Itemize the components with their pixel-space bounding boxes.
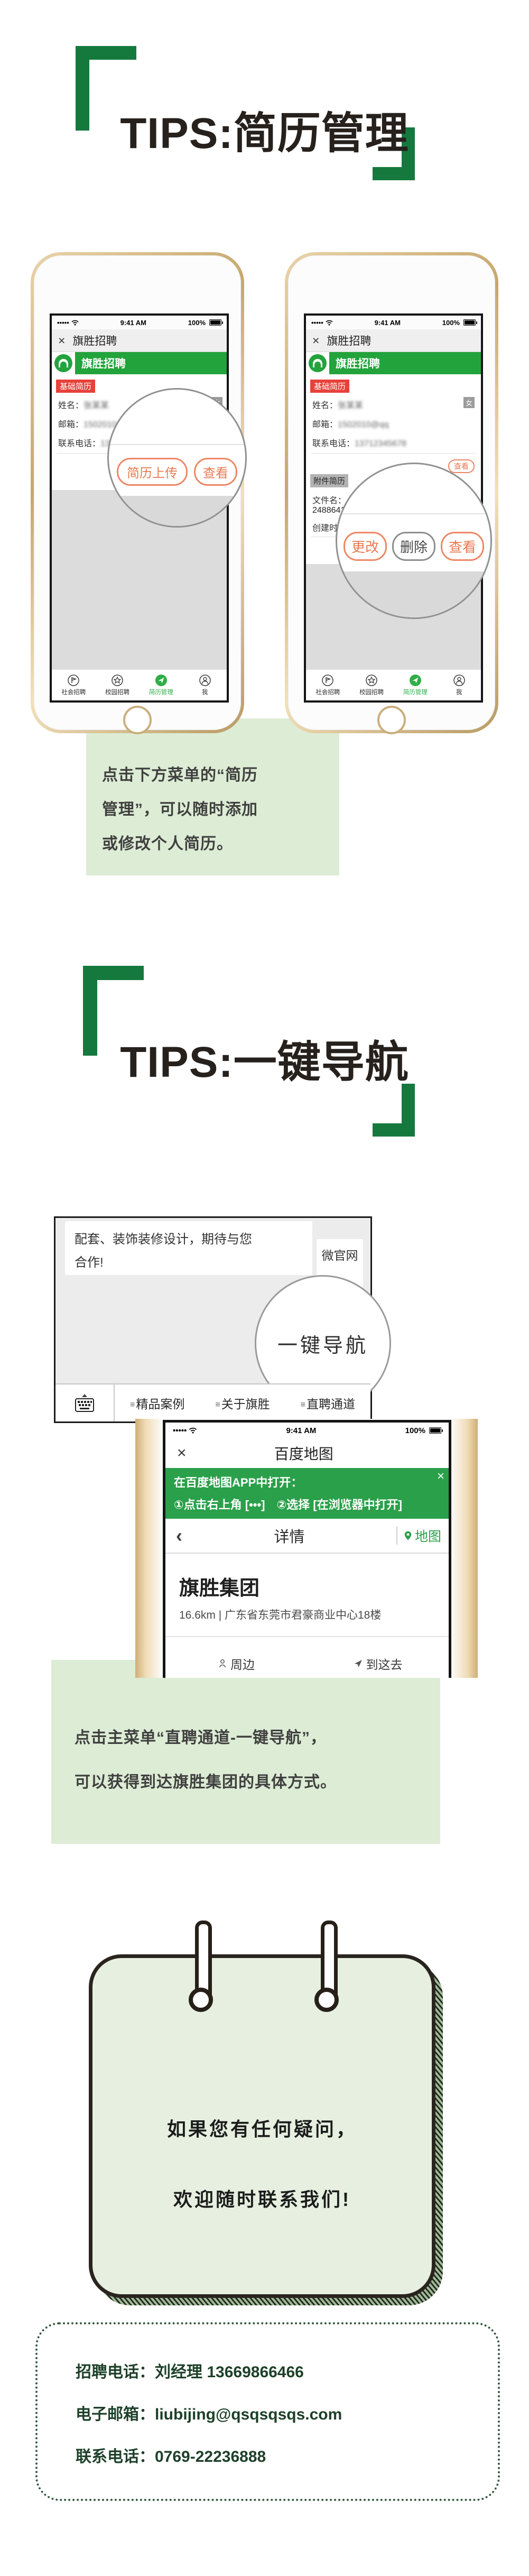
- form-row-name: 姓名：张某某: [58, 398, 109, 411]
- account-logo: [306, 352, 329, 374]
- tab-campus-recruit[interactable]: 校园招聘: [96, 670, 140, 700]
- social-recruit-icon: [67, 674, 80, 687]
- signal-dots-icon: •••••: [311, 319, 323, 327]
- tip1-note-box: 点击下方菜单的“简历 管理”，可以随时添加 或修改个人简历。: [86, 718, 339, 875]
- recruit-phone-value: 刘经理 13669866466: [155, 2363, 304, 2381]
- campus-recruit-icon: [365, 674, 378, 687]
- status-bar: ••••• 9:41 AM 100%: [52, 316, 227, 329]
- notepad-line2: 欢迎随时联系我们!: [92, 2184, 432, 2212]
- divider: [396, 1527, 397, 1545]
- tab-resume-manage[interactable]: 简历管理: [394, 670, 438, 700]
- resume-upload-button[interactable]: 简历上传: [117, 458, 188, 486]
- name-value-blurred: 张某某: [338, 401, 363, 410]
- detail-subnav: ‹ 详情 地图: [165, 1519, 449, 1554]
- battery-percent: 100%: [188, 319, 206, 327]
- section-title-navigation: TIPS:一键导航: [0, 1027, 529, 1090]
- tip1-note-line1: 点击下方菜单的“简历: [102, 762, 258, 785]
- wechat-chat-screenshot: 配套、装饰装修设计，期待与您 合作! 微官网 东方 一键导航 ≡精品案例 ≡: [54, 1216, 372, 1423]
- social-recruit-icon: [321, 674, 334, 687]
- map-link-label: 地图: [415, 1526, 441, 1545]
- tip2-note-line2: 可以获得到达旗胜集团的具体方式。: [75, 1769, 337, 1792]
- wechat-menu-bar: ≡精品案例 ≡关于旗胜 ≡直聘通道: [55, 1383, 370, 1421]
- account-title: 旗胜招聘: [336, 355, 380, 371]
- navbar-title: 旗胜招聘: [72, 333, 117, 348]
- navbar-title: 旗胜招聘: [327, 333, 371, 348]
- battery-icon: [429, 1427, 441, 1434]
- wifi-icon: [326, 320, 333, 326]
- form-row-email: 邮箱：1502010@qq: [312, 417, 388, 430]
- tab-me[interactable]: 我: [183, 670, 227, 700]
- back-chevron-icon[interactable]: ‹: [176, 1525, 182, 1547]
- wifi-icon: [71, 320, 79, 326]
- qisheng-logo-icon: [54, 354, 72, 372]
- notepad-line1: 如果您有任何疑问，: [92, 2114, 432, 2141]
- menu-item-guanyu-qisheng[interactable]: ≡关于旗胜: [200, 1394, 285, 1412]
- form-row-phone: 联系电话：13712345678: [312, 436, 406, 449]
- binder-ring-left-loop: [189, 1988, 213, 2012]
- menu-item-zhipin-tongdao[interactable]: ≡直聘通道: [285, 1394, 370, 1412]
- phone-mockup-map: ••••• 9:41 AM 100% × 百度地图 在百度地图APP中打开： ①…: [135, 1419, 478, 1678]
- open-in-app-banner: 在百度地图APP中打开： ①点击右上角 [•••] ②选择 [在浏览器中打开] …: [165, 1468, 449, 1519]
- resume-manage-icon: [155, 674, 168, 687]
- name-value-blurred: 张某某: [83, 401, 109, 410]
- me-icon: [453, 674, 466, 687]
- close-icon[interactable]: ×: [312, 334, 319, 348]
- qisheng-logo-icon: [309, 354, 327, 372]
- battery-icon: [463, 319, 476, 326]
- bottom-tab-bar: 社会招聘 校园招聘 简历管理 我: [306, 669, 481, 700]
- binder-ring-right-loop: [314, 1988, 339, 2012]
- view-basic-resume-button[interactable]: 查看: [448, 459, 475, 473]
- action-go-here[interactable]: 到这去: [307, 1649, 449, 1678]
- action-around[interactable]: 周边: [165, 1649, 307, 1678]
- battery-percent: 100%: [442, 319, 460, 327]
- battery-icon: [209, 319, 221, 326]
- section-tag-attachment-resume: 附件简历: [310, 474, 348, 487]
- banner-line1: 在百度地图APP中打开：: [174, 1473, 440, 1490]
- form-row-name: 姓名：张某某: [312, 398, 363, 411]
- subnav-title: 详情: [182, 1525, 396, 1547]
- contact-email: 电子邮箱：liubijing@qsqsqsqs.com: [76, 2401, 342, 2424]
- chat-bubble: 配套、装饰装修设计，期待与您 合作!: [65, 1221, 312, 1275]
- close-icon[interactable]: ×: [177, 1444, 187, 1462]
- gender-badge: 女: [463, 397, 475, 408]
- account-header: 旗胜招聘: [306, 352, 481, 374]
- app-screenshot-baidu-map: ••••• 9:41 AM 100% × 百度地图 在百度地图APP中打开： ①…: [163, 1420, 451, 1678]
- section-title-resume: TIPS:简历管理: [0, 98, 529, 161]
- bottom-tab-bar: 社会招聘 校园招聘 简历管理 我: [52, 669, 227, 700]
- section-tag-basic-resume: 基础简历: [56, 380, 95, 393]
- magnifier-circle-resume-upload: 简历上传 查看: [107, 388, 247, 528]
- hamburger-icon: ≡: [130, 1400, 135, 1409]
- phone-mockup-right: ••••• 9:41 AM 100% × 旗胜招聘 旗胜招聘 基础简历 姓名：张…: [285, 252, 498, 733]
- tab-me[interactable]: 我: [437, 670, 481, 700]
- tab-campus-recruit[interactable]: 校园招聘: [350, 670, 394, 700]
- campus-recruit-icon: [111, 674, 124, 687]
- poster-canvas: TIPS:简历管理 点击下方菜单的“简历 管理”，可以随时添加 或修改个人简历。…: [0, 0, 529, 2576]
- wifi-icon: [189, 1427, 197, 1434]
- tab-social-recruit[interactable]: 社会招聘: [306, 670, 350, 700]
- home-button[interactable]: [377, 706, 406, 734]
- hamburger-icon: ≡: [215, 1400, 220, 1409]
- map-pin-icon: [403, 1530, 413, 1541]
- around-person-icon: [218, 1658, 227, 1669]
- delete-button[interactable]: 删除: [392, 532, 435, 561]
- me-icon: [199, 674, 211, 687]
- wechat-navbar: × 旗胜招聘: [52, 329, 227, 352]
- account-title: 旗胜招聘: [81, 355, 126, 371]
- tab-resume-manage[interactable]: 简历管理: [140, 670, 183, 700]
- popup-item-weiguanwang[interactable]: 微官网: [317, 1245, 363, 1263]
- section-tag-basic-resume: 基础简历: [310, 380, 349, 393]
- phone-mockup-left: ••••• 9:41 AM 100% × 旗胜招聘 旗胜招聘 基础简历 姓名：张…: [31, 252, 244, 733]
- keyboard-icon: [75, 1398, 94, 1412]
- tip1-note-line3: 或修改个人简历。: [102, 830, 233, 854]
- arrow-up-icon: [82, 1394, 87, 1397]
- chat-bubble-line2: 合作!: [75, 1252, 104, 1270]
- banner-close-icon[interactable]: ×: [437, 1469, 444, 1484]
- landline-value: 0769-22236888: [155, 2448, 266, 2466]
- tab-social-recruit[interactable]: 社会招聘: [52, 670, 96, 700]
- contact-landline: 联系电话：0769-22236888: [76, 2443, 266, 2467]
- wechat-navbar: × 旗胜招聘: [306, 329, 481, 352]
- bracket-bottom-right-2-vertical: [402, 1084, 415, 1137]
- email-value-blurred: 1502010@qq: [338, 420, 388, 429]
- resume-manage-icon: [409, 674, 422, 687]
- chat-bubble-line1: 配套、装饰装修设计，期待与您: [75, 1229, 252, 1247]
- change-button[interactable]: 更改: [344, 532, 387, 561]
- keyboard-toggle[interactable]: [55, 1384, 115, 1421]
- poi-name: 旗胜集团: [179, 1572, 259, 1601]
- status-time: 9:41 AM: [335, 319, 440, 327]
- home-button[interactable]: [123, 706, 152, 734]
- menu-item-jingpin-anli[interactable]: ≡精品案例: [115, 1394, 200, 1412]
- magnifier-circle-resume-actions: 更改 删除 查看: [336, 463, 492, 619]
- notepad-card: 如果您有任何疑问， 欢迎随时联系我们!: [89, 1954, 435, 2298]
- contact-recruit-phone: 招聘电话：刘经理 13669866466: [76, 2359, 304, 2382]
- phone-value-blurred: 13712345678: [355, 439, 406, 448]
- battery-percent: 100%: [405, 1426, 425, 1435]
- account-logo: [52, 352, 75, 374]
- view-button[interactable]: 查看: [194, 458, 237, 486]
- tip2-note-box: 点击主菜单“直聘通道-一键导航”， 可以获得到达旗胜集团的具体方式。: [51, 1660, 440, 1844]
- navbar-title: 百度地图: [187, 1443, 421, 1464]
- navigate-arrow-icon: [354, 1659, 363, 1668]
- signal-dots-icon: •••••: [173, 1426, 187, 1435]
- status-time: 9:41 AM: [199, 1426, 403, 1435]
- view-button[interactable]: 查看: [441, 532, 484, 561]
- hamburger-icon: ≡: [301, 1400, 305, 1409]
- tip1-note-line2: 管理”，可以随时添加: [102, 796, 258, 819]
- banner-line2: ①点击右上角 [•••] ②选择 [在浏览器中打开]: [174, 1495, 440, 1512]
- email-value: liubijing@qsqsqsqs.com: [155, 2406, 342, 2423]
- tip2-note-line1: 点击主菜单“直聘通道-一键导航”，: [75, 1724, 327, 1748]
- baidu-map-navbar: × 百度地图: [165, 1438, 449, 1468]
- close-icon[interactable]: ×: [58, 334, 65, 348]
- status-bar: ••••• 9:41 AM 100%: [306, 316, 481, 329]
- map-link[interactable]: 地图: [403, 1526, 441, 1545]
- one-key-nav-label[interactable]: 一键导航: [277, 1329, 368, 1358]
- status-bar: ••••• 9:41 AM 100%: [165, 1423, 449, 1438]
- status-time: 9:41 AM: [81, 319, 186, 327]
- poi-address: 16.6km | 广东省东莞市君豪商业中心18楼: [179, 1606, 381, 1622]
- divider: [165, 1636, 449, 1637]
- account-header: 旗胜招聘: [52, 352, 227, 374]
- signal-dots-icon: •••••: [57, 319, 69, 327]
